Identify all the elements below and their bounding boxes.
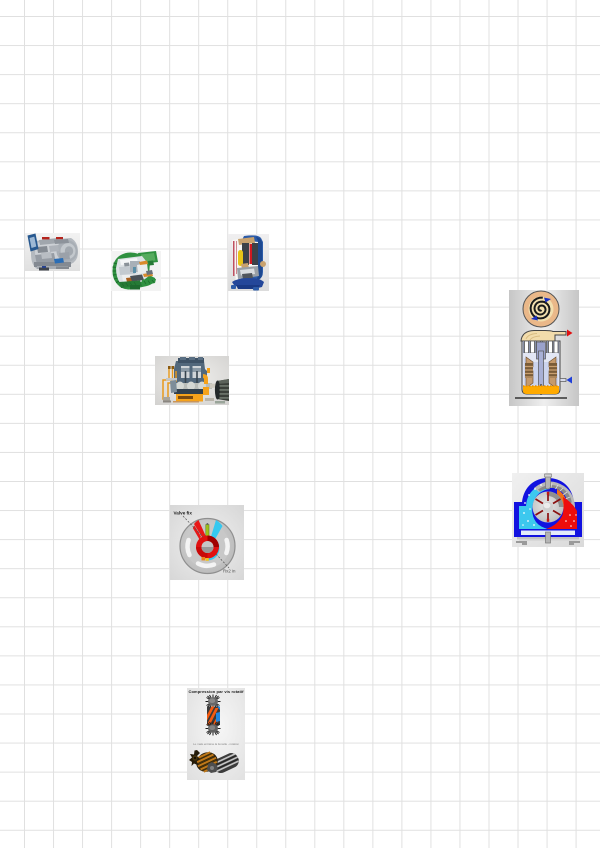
svg-text:Compression par vis rotatif: Compression par vis rotatif: [189, 689, 245, 694]
svg-text:Rx2 in: Rx2 in: [223, 569, 236, 574]
svg-text:Valve fix: Valve fix: [174, 511, 193, 516]
svg-text:Le male entraine la femelle -: Le male entraine la femelle - rotation: [193, 742, 239, 746]
